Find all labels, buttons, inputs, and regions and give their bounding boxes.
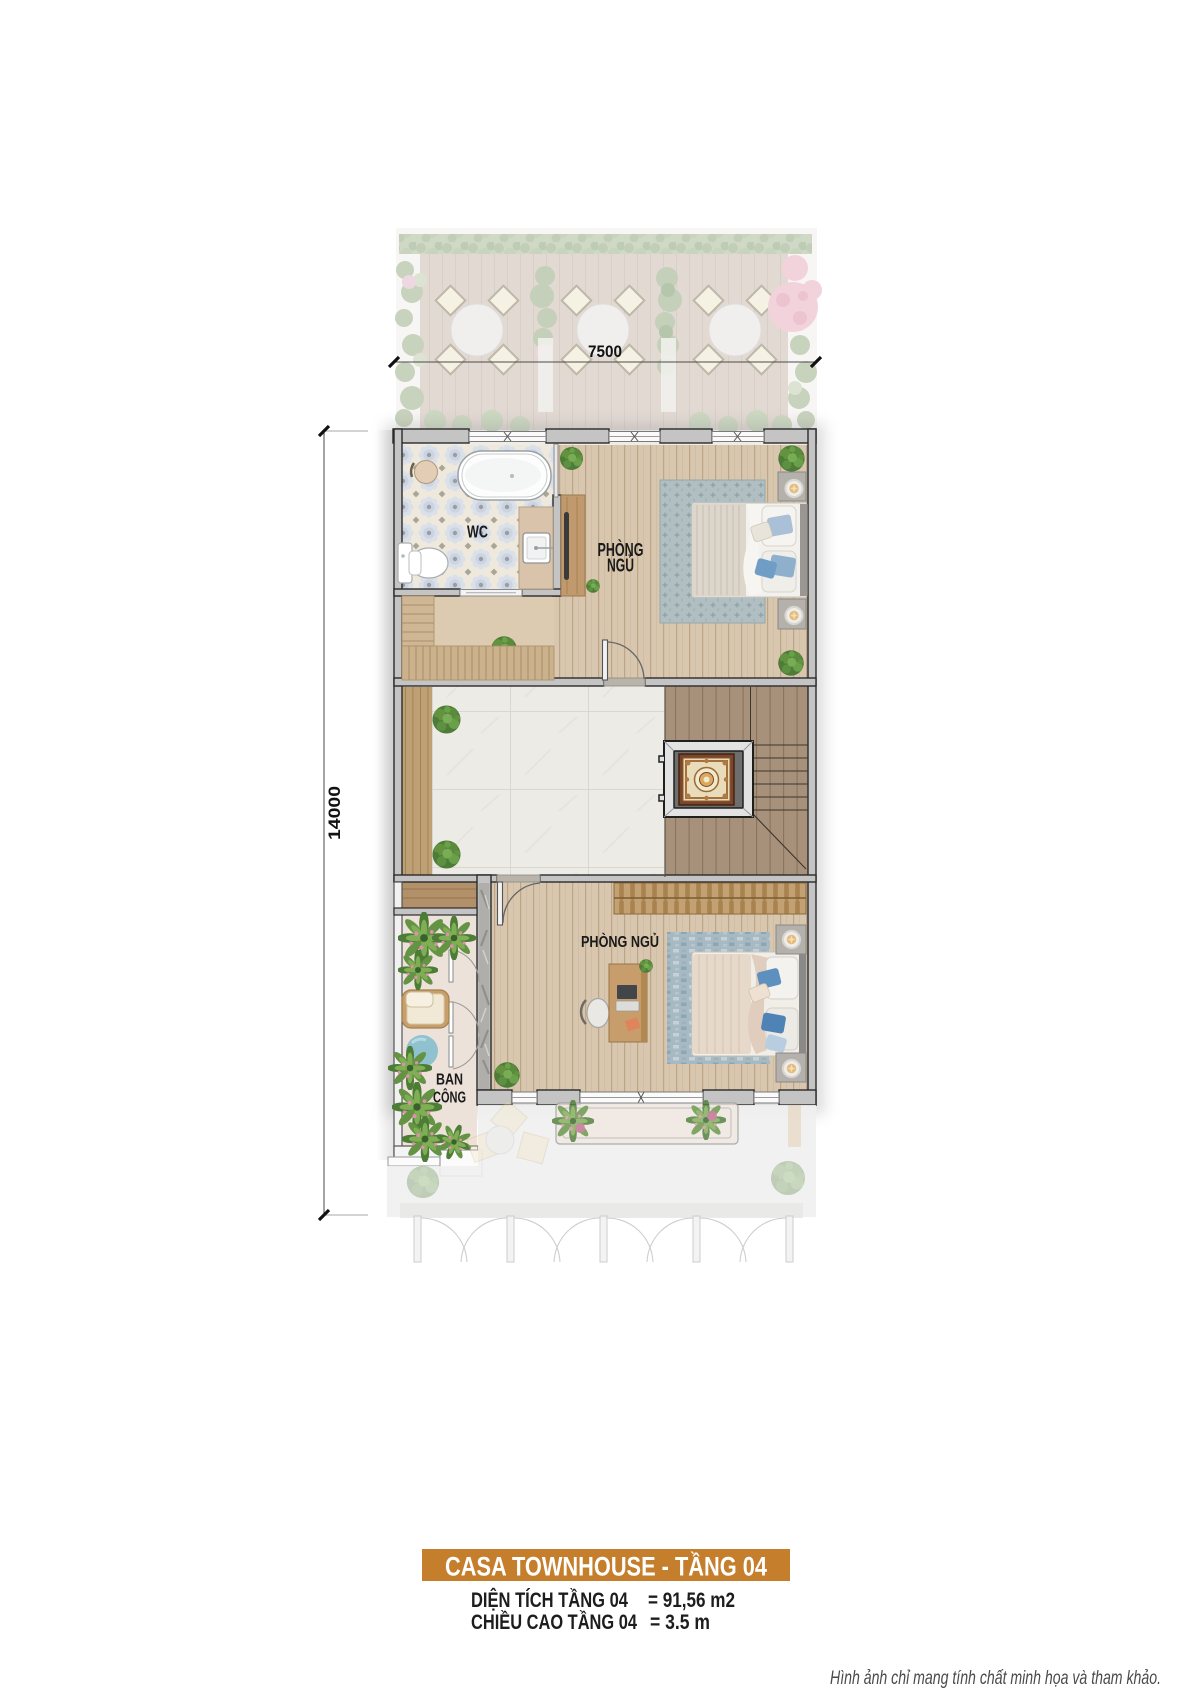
svg-text:CÔNG: CÔNG	[433, 1088, 466, 1107]
svg-text:14000: 14000	[325, 786, 344, 840]
svg-text:= 91,56 m2: = 91,56 m2	[648, 1589, 735, 1612]
svg-text:CASA TOWNHOUSE - TẦNG 04: CASA TOWNHOUSE - TẦNG 04	[445, 1551, 767, 1582]
svg-text:NGỦ: NGỦ	[607, 555, 634, 576]
svg-text:DIỆN TÍCH TẦNG 04: DIỆN TÍCH TẦNG 04	[471, 1588, 628, 1612]
svg-text:Hình ảnh chỉ mang tính chất mi: Hình ảnh chỉ mang tính chất minh họa và …	[830, 1668, 1161, 1689]
svg-text:7500: 7500	[588, 342, 622, 361]
svg-text:CHIỀU CAO TẦNG 04: CHIỀU CAO TẦNG 04	[471, 1611, 637, 1634]
svg-text:BAN: BAN	[436, 1072, 463, 1089]
svg-text:WC: WC	[467, 522, 488, 542]
svg-text:PHÒNG NGỦ: PHÒNG NGỦ	[581, 932, 659, 951]
svg-text:= 3.5 m: = 3.5 m	[650, 1611, 710, 1634]
